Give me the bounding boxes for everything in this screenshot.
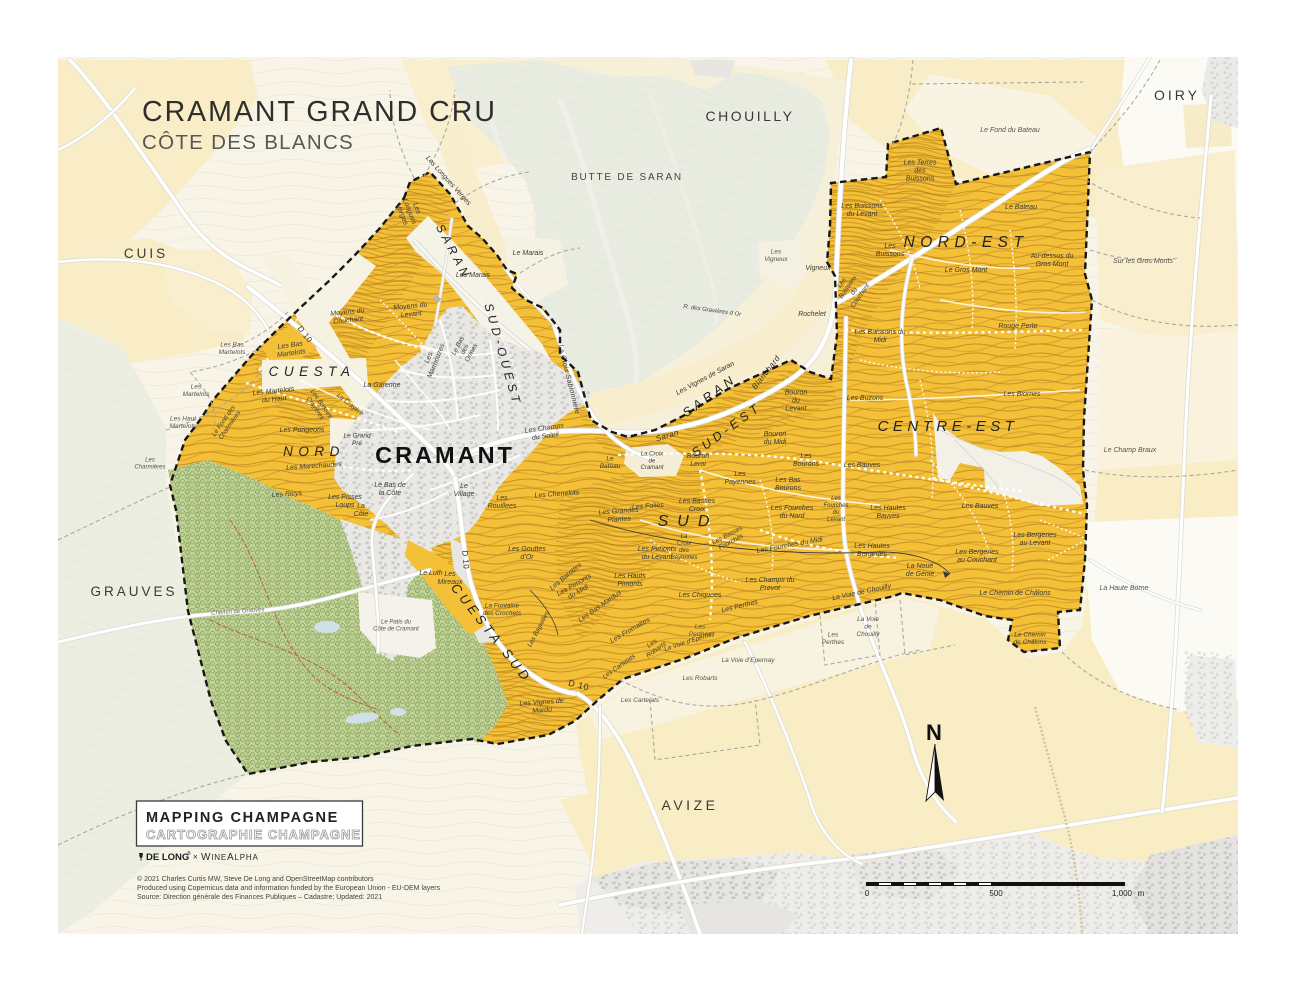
svg-text:Les Robarts: Les Robarts [682, 675, 718, 682]
svg-text:La Haute Borne: La Haute Borne [1099, 585, 1148, 592]
svg-text:Les Bauves: Les Bauves [844, 462, 881, 469]
svg-text:Le Bateau: Le Bateau [1005, 204, 1037, 211]
svg-text:N: N [926, 720, 942, 745]
svg-text:m: m [1138, 889, 1145, 898]
svg-text:Le Champ Braux: Le Champ Braux [1104, 447, 1157, 454]
svg-text:Les Cartelats: Les Cartelats [621, 697, 660, 704]
svg-text:NORD: NORD [283, 444, 345, 459]
svg-text:La Fontainedes Crochets: La Fontainedes Crochets [483, 602, 522, 617]
svg-text:Le Cheminde Châlons: Le Cheminde Châlons [1014, 631, 1048, 646]
svg-text:SUD: SUD [658, 513, 719, 530]
svg-text:Les HautsPimonts: Les HautsPimonts [614, 573, 646, 588]
svg-text:CUIS: CUIS [124, 246, 168, 261]
svg-text:Les Pimontsdu Levant: Les Pimontsdu Levant [638, 546, 677, 561]
svg-text:Vigneux: Vigneux [805, 265, 831, 272]
svg-text:Les Chiquees: Les Chiquees [679, 592, 722, 599]
svg-text:La Nouede Génie: La Nouede Génie [906, 563, 935, 578]
svg-text:Au-dessus duGros Mont: Au-dessus duGros Mont [1030, 253, 1074, 268]
svg-text:GRAUVES: GRAUVES [90, 584, 177, 599]
svg-text:Les HautMartelots: Les HautMartelots [170, 415, 198, 430]
svg-text:Les Buissonsdu Levant: Les Buissonsdu Levant [841, 203, 883, 218]
svg-text:Rouge Perte: Rouge Perte [998, 323, 1037, 330]
svg-text:Les Pongeons: Les Pongeons [280, 427, 325, 434]
svg-text:500: 500 [989, 889, 1003, 898]
svg-text:Les Biornes: Les Biornes [1004, 391, 1041, 398]
svg-text:Produced using Copernicus data: Produced using Copernicus data and infor… [137, 885, 441, 892]
svg-text:© 2021 Charles Curtis MW, Stev: © 2021 Charles Curtis MW, Steve De Long … [137, 875, 374, 883]
svg-text:CÔTE DES BLANCS: CÔTE DES BLANCS [142, 131, 354, 154]
svg-text:DE LONG: DE LONG [146, 852, 189, 863]
svg-text:Les Buzons: Les Buzons [847, 395, 884, 402]
svg-text:CRAMANT: CRAMANT [375, 442, 515, 468]
svg-text:Sur les Gros Monts: Sur les Gros Monts [1113, 258, 1173, 265]
svg-text:Rochelet: Rochelet [798, 311, 827, 318]
svg-text:Les Bauves: Les Bauves [962, 503, 999, 510]
svg-text:Les BasBourons: Les BasBourons [775, 477, 802, 492]
svg-text:Le Fond du Bateau: Le Fond du Bateau [980, 127, 1040, 134]
svg-text:Les BasMartelots: Les BasMartelots [219, 341, 246, 356]
svg-text:MAPPING CHAMPAGNE: MAPPING CHAMPAGNE [146, 810, 339, 826]
svg-text:La Voie d’Epernay: La Voie d’Epernay [722, 657, 776, 664]
svg-text:Les Bergeriesau Couchant: Les Bergeriesau Couchant [955, 549, 999, 564]
svg-text:Le Marais: Le Marais [513, 250, 544, 257]
svg-text:La Garenne: La Garenne [364, 382, 401, 389]
svg-text:Les Marais: Les Marais [456, 272, 491, 279]
svg-text:OIRY: OIRY [1154, 87, 1200, 103]
svg-text:Bourondu Midi: Bourondu Midi [764, 431, 787, 446]
svg-text:Le Gros Mont: Le Gros Mont [945, 267, 988, 274]
svg-text:D 10: D 10 [460, 550, 470, 570]
svg-text:CARTOGRAPHIE CHAMPAGNE: CARTOGRAPHIE CHAMPAGNE [146, 827, 361, 842]
svg-text:CENTRE-EST: CENTRE-EST [878, 418, 1019, 435]
svg-text:WINEALPHA: WINEALPHA [201, 852, 259, 863]
svg-text:AVIZE: AVIZE [662, 797, 719, 813]
svg-text:1,000: 1,000 [1112, 889, 1133, 898]
svg-text:CHOUILLY: CHOUILLY [706, 108, 795, 124]
svg-text:Les HautesBergeries: Les HautesBergeries [854, 543, 890, 558]
svg-text:Source: Direction générale des: Source: Direction générale des Finances … [137, 894, 382, 901]
svg-text:CRAMANT GRAND CRU: CRAMANT GRAND CRU [142, 96, 497, 128]
svg-text:0: 0 [865, 889, 870, 898]
svg-text:NORD-EST: NORD-EST [904, 234, 1029, 251]
svg-text:CUESTA: CUESTA [269, 364, 356, 379]
svg-text:Le Chemin de Châlons: Le Chemin de Châlons [979, 590, 1051, 597]
svg-text:BUTTE DE SARAN: BUTTE DE SARAN [571, 172, 683, 183]
svg-text:®: ® [187, 850, 191, 857]
svg-text:×: × [193, 853, 198, 862]
svg-text:Le Luth: Le Luth [419, 570, 442, 577]
